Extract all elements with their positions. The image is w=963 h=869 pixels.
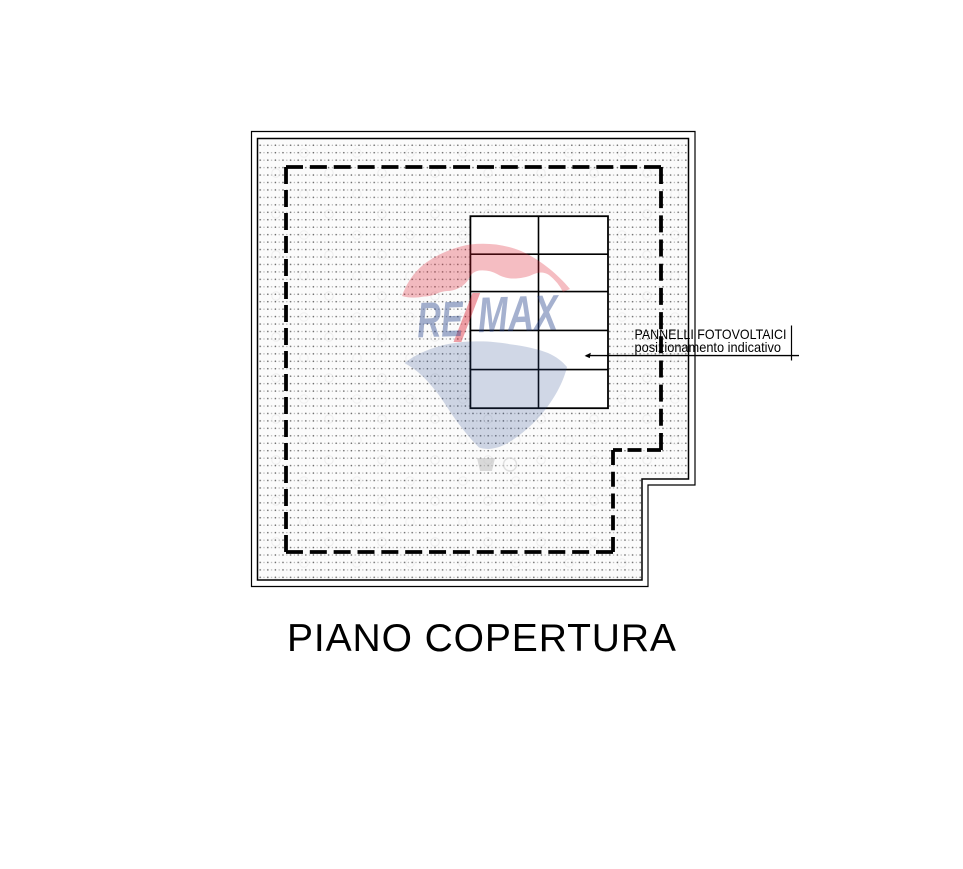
svg-text:MAX: MAX xyxy=(477,284,561,343)
svg-text:PIANO COPERTURA: PIANO COPERTURA xyxy=(287,617,677,660)
svg-text:RE: RE xyxy=(416,291,465,349)
svg-text:posizionamento indicativo: posizionamento indicativo xyxy=(635,340,782,355)
